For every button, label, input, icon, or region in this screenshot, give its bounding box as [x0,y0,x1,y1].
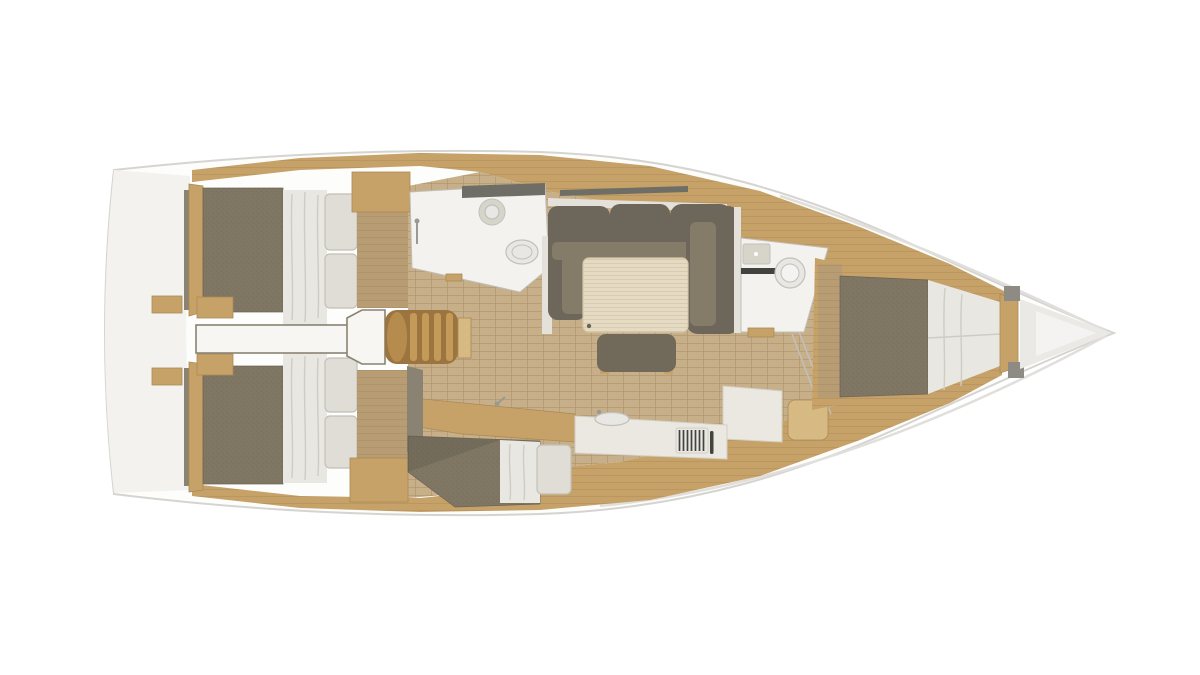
step-rung [446,313,453,361]
forward-cabin-floor-strip [818,264,842,398]
headboard-wood-trim [189,362,203,492]
nav-desk [723,386,782,442]
wardrobe-cabinet [352,172,410,212]
headboard-trim-bar [184,190,189,310]
salon-bench [597,334,676,374]
bed-step-trim [197,297,233,318]
steps-side-trim [458,318,471,358]
head-door-trim [748,328,774,337]
galley-faucet [597,410,601,414]
bed-pillow [325,254,357,308]
headboard-wood-trim [189,184,203,316]
stove-grill-lines [680,430,704,451]
sofa-wall-right [734,207,741,333]
bed-pillow [325,358,357,412]
bench-cushion [597,334,676,372]
shower-head [415,219,420,224]
aft-cabin-port [152,172,410,325]
floorplan-canvas [0,0,1200,675]
step-rung [434,313,441,361]
transom-trim-tab [152,368,182,385]
table-leg-dot [587,324,591,328]
bed-step-trim [197,354,233,375]
cabin-entry-floor [357,212,408,308]
galley-sink [595,413,629,426]
step-rung [422,313,429,361]
transom-trim-tab [152,296,182,313]
transom-platform [105,170,190,493]
double-bed-mattress [203,188,283,312]
steps-lower-tread [387,312,407,362]
anchor-locker [1020,299,1112,369]
stern-corridor [196,325,348,353]
vent-slot [741,268,777,274]
forward-head-toilet-bowl [781,264,799,282]
sofa-right-seat [690,222,716,326]
bow-bulkhead [1000,294,1018,373]
yacht-floorplan-screenshot [0,0,1200,675]
aft-head-toilet [506,240,538,264]
galley-stove [676,428,714,454]
salon-table [583,258,688,332]
headboard-trim-bar [184,368,189,486]
aft-head-sink-basin [485,205,499,219]
vberth-mattress [840,276,928,397]
berth-pillow [537,445,571,494]
sink-drain-dot [754,252,758,256]
cabin-entry-floor [357,370,408,458]
aft-cabin-starboard [152,353,408,502]
companionway-landing [347,310,385,364]
head-door-trim [446,274,462,281]
step-rung [410,313,417,361]
berth-duvet [500,440,540,503]
companionway-steps [385,310,458,364]
bow-trim-block [1004,286,1020,301]
oven-handle [710,431,714,454]
wardrobe-cabinet [350,458,408,502]
double-bed-mattress [203,366,283,484]
